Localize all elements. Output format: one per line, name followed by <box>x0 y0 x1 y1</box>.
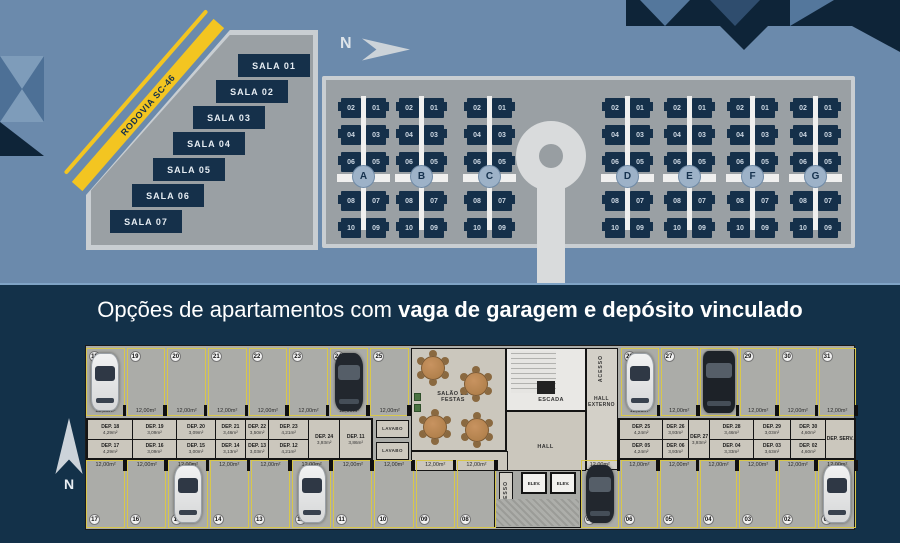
deposit-dep-28[interactable]: DEP. 283,46m² <box>710 420 752 440</box>
unit-cell[interactable]: 07 <box>818 191 838 211</box>
unit-cell[interactable]: 04 <box>467 125 487 145</box>
stall-number: 14 <box>213 514 224 525</box>
lavatory-label: LAVABO <box>382 448 403 453</box>
deposit-dep-02[interactable]: DEP. 024,60m² <box>791 440 825 459</box>
unit-cell[interactable]: 07 <box>755 191 775 211</box>
unit-cell[interactable]: 02 <box>793 98 813 118</box>
parking-stall[interactable]: 0412,00m² <box>700 460 738 528</box>
unit-row: 0201 <box>793 98 838 118</box>
roundabout <box>516 121 586 191</box>
parking-stall[interactable]: 2112,00m² <box>208 348 247 416</box>
unit-cell[interactable]: 03 <box>492 125 512 145</box>
parking-stall[interactable]: 2212,00m² <box>249 348 288 416</box>
building-e: 02010403060508071009E <box>667 88 712 240</box>
deposit-dep-23[interactable]: DEP. 234,21m² <box>269 420 307 440</box>
unit-cell[interactable]: 07 <box>692 191 712 211</box>
deposit-dep-05[interactable]: DEP. 054,24m² <box>620 440 662 459</box>
north-label: N <box>340 35 352 53</box>
unit-cell[interactable]: 10 <box>605 218 625 238</box>
roundabout-center <box>539 144 563 168</box>
parking-stall[interactable]: 2812,00m² <box>700 348 738 416</box>
paved-area <box>495 499 579 526</box>
parking-stall[interactable]: 2512,00m² <box>370 348 409 416</box>
deposit-name: DEP. SERV. <box>827 436 854 442</box>
deposit-area: 4,21m² <box>281 430 296 435</box>
deposit-column: DEP. 193,09m²DEP. 163,09m² <box>133 420 176 458</box>
deposit-dep-15[interactable]: DEP. 153,00m² <box>177 440 215 459</box>
unit-cell[interactable]: 08 <box>605 191 625 211</box>
deposit-dep-12[interactable]: DEP. 124,21m² <box>269 440 307 459</box>
unit-row: 0201 <box>467 98 512 118</box>
deposit-area: 3,46m² <box>724 430 739 435</box>
unit-cell[interactable]: 08 <box>467 191 487 211</box>
stall-area-label: 12,00m² <box>748 408 768 414</box>
deposit-dep-20[interactable]: DEP. 203,09m² <box>177 420 215 440</box>
unit-cell[interactable]: 02 <box>605 98 625 118</box>
parking-row-top-right: 2612,00m²2712,00m²2812,00m²2912,00m²3012… <box>621 348 856 416</box>
plant <box>414 404 421 412</box>
deposit-column: DEP. 254,24m²DEP. 054,24m² <box>620 420 663 458</box>
unit-cell[interactable]: 04 <box>793 125 813 145</box>
unit-cell[interactable]: 08 <box>667 191 687 211</box>
parking-stall[interactable]: 2412,00m² <box>330 348 369 416</box>
unit-cell[interactable]: 09 <box>692 218 712 238</box>
parking-stall[interactable]: 1712,00m² <box>86 460 125 528</box>
round-table <box>465 418 489 442</box>
parking-stall[interactable]: 1812,00m² <box>86 348 125 416</box>
elevator: ELEV. <box>521 472 547 494</box>
stall-area-label: 12,00m² <box>669 462 689 468</box>
parking-stall[interactable]: 2912,00m² <box>740 348 778 416</box>
unit-row: 0403 <box>605 125 650 145</box>
deposit-column: DEP. 184,29m²DEP. 174,29m² <box>88 420 133 458</box>
unit-row: 1009 <box>467 218 512 238</box>
unit-cell[interactable]: 08 <box>793 191 813 211</box>
unit-row: 1009 <box>667 218 712 238</box>
parking-stall[interactable]: 1512,00m² <box>168 460 207 528</box>
stall-number: 05 <box>663 514 674 525</box>
unit-row: 0201 <box>667 98 712 118</box>
parking-row-bottom-right: 0712,00m²0612,00m²0512,00m²0412,00m²0312… <box>581 460 856 528</box>
deposit-column: DEP. 263,93m²DEP. 063,93m² <box>663 420 689 458</box>
stall-area-label: 12,00m² <box>219 462 239 468</box>
deposit-dep-30[interactable]: DEP. 304,60m² <box>791 420 825 440</box>
parking-stall[interactable]: 1212,00m² <box>292 460 331 528</box>
unit-cell[interactable]: 07 <box>630 191 650 211</box>
car-dark <box>335 353 363 411</box>
stall-number: 30 <box>782 351 793 362</box>
unit-row: 0201 <box>399 98 444 118</box>
car-windshield <box>630 366 650 381</box>
deposit-area: 3,33m² <box>724 449 739 454</box>
car-windshield <box>338 365 360 380</box>
parking-stall[interactable]: 2612,00m² <box>621 348 659 416</box>
unit-cell[interactable]: 03 <box>366 125 386 145</box>
lavatory-label: LAVABO <box>382 426 403 431</box>
unit-row: 0807 <box>341 191 386 211</box>
unit-cell[interactable]: 01 <box>692 98 712 118</box>
stall-number: 09 <box>419 514 430 525</box>
unit-row: 0807 <box>793 191 838 211</box>
car-rear-window <box>828 510 846 515</box>
car-rear-window <box>96 398 114 403</box>
unit-cell[interactable]: 09 <box>818 218 838 238</box>
unit-row: 1009 <box>341 218 386 238</box>
lavatory: LAVABO <box>376 442 409 460</box>
unit-cell[interactable]: 10 <box>730 218 750 238</box>
stall-number: 23 <box>292 351 303 362</box>
stall-number: 16 <box>130 514 141 525</box>
deposit-column: DEP. 273,93m² <box>689 420 711 458</box>
round-table <box>464 372 488 396</box>
title-bold: vaga de garagem e depósito vinculado <box>398 297 803 322</box>
external-hall: ACESSO HALL EXTERNO <box>586 348 618 470</box>
building-b: 02010403060508071009B <box>399 88 444 240</box>
stall-number: 27 <box>664 351 675 362</box>
sala-block[interactable]: SALA 03 <box>193 106 265 129</box>
parking-stall[interactable]: 0312,00m² <box>739 460 777 528</box>
parking-stall[interactable]: 1312,00m² <box>251 460 290 528</box>
stall-area-label: 12,00m² <box>708 462 728 468</box>
unit-cell[interactable]: 07 <box>366 191 386 211</box>
deposit-area: 3,46m² <box>223 430 238 435</box>
unit-cell[interactable]: 09 <box>366 218 386 238</box>
title-normal: Opções de apartamentos com <box>97 297 398 322</box>
stall-number: 02 <box>782 514 793 525</box>
unit-cell[interactable]: 01 <box>818 98 838 118</box>
building-badge[interactable]: C <box>478 165 501 188</box>
deposit-dep-11[interactable]: DEP. 113,86m² <box>340 420 371 458</box>
unit-cell[interactable]: 09 <box>424 218 444 238</box>
deposit-dep-18[interactable]: DEP. 184,29m² <box>88 420 132 440</box>
building-c: 02010403060508071009C <box>467 88 512 240</box>
unit-row: 0201 <box>341 98 386 118</box>
unit-cell[interactable]: 02 <box>667 98 687 118</box>
unit-row: 0403 <box>399 125 444 145</box>
unit-cell[interactable]: 01 <box>424 98 444 118</box>
deposit-dep-16[interactable]: DEP. 163,09m² <box>133 440 175 459</box>
parking-stall[interactable]: 2012,00m² <box>167 348 206 416</box>
stall-area-label: 12,00m² <box>827 408 847 414</box>
stall-number: 25 <box>373 351 384 362</box>
parking-row-bottom-left: 1712,00m²1612,00m²1512,00m²1412,00m²1312… <box>86 460 496 528</box>
deposit-column: DEP. 243,93m² <box>309 420 341 458</box>
car-rear-window <box>707 401 731 406</box>
stall-number: 19 <box>130 351 141 362</box>
access-label: ACESSO <box>598 355 604 382</box>
deposit-dep-13[interactable]: DEP. 133,03m² <box>246 440 269 459</box>
car-windshield <box>178 478 198 493</box>
unit-cell[interactable]: 04 <box>399 125 419 145</box>
deposit-area: 4,60m² <box>801 449 816 454</box>
unit-row: 1009 <box>730 218 775 238</box>
deposit-dep-17[interactable]: DEP. 174,29m² <box>88 440 132 459</box>
stall-number: 13 <box>254 514 265 525</box>
deposit-column: DEP. 283,46m²DEP. 043,33m² <box>710 420 753 458</box>
deposit-dep-21[interactable]: DEP. 213,46m² <box>216 420 245 440</box>
unit-cell[interactable]: 02 <box>341 98 361 118</box>
unit-cell[interactable]: 10 <box>341 218 361 238</box>
unit-row: 0403 <box>341 125 386 145</box>
external-hall-label: HALL EXTERNO <box>587 397 616 409</box>
hall: HALL <box>506 411 586 471</box>
deposit-area: 3,93m² <box>668 430 683 435</box>
car-white <box>91 353 119 411</box>
deposit-area: 4,24m² <box>634 430 649 435</box>
party-room: SALÃO DE FESTAS <box>411 348 506 451</box>
deposit-column: DEP. 234,21m²DEP. 124,21m² <box>269 420 308 458</box>
deposit-dep-serv[interactable]: DEP. SERV. <box>826 420 854 458</box>
unit-cell[interactable]: 07 <box>492 191 512 211</box>
deposit-area: 4,24m² <box>634 449 649 454</box>
car-windshield <box>589 477 611 492</box>
unit-cell[interactable]: 03 <box>630 125 650 145</box>
deposit-dep-06[interactable]: DEP. 063,93m² <box>663 440 688 459</box>
deposit-column: DEP. 223,50m²DEP. 133,03m² <box>246 420 270 458</box>
building-a: 02010403060508071009A <box>341 88 386 240</box>
parking-stall[interactable]: 0912,00m² <box>416 460 455 528</box>
deposit-dep-04[interactable]: DEP. 043,33m² <box>710 440 752 459</box>
parking-stall[interactable]: 1912,00m² <box>127 348 166 416</box>
parking-stall[interactable]: 1612,00m² <box>127 460 166 528</box>
deposit-area: 4,29m² <box>103 449 118 454</box>
deposit-column: DEP. 293,03m²DEP. 033,63m² <box>754 420 791 458</box>
stall-number: 22 <box>252 351 263 362</box>
car-white <box>298 465 326 523</box>
unit-cell[interactable]: 02 <box>730 98 750 118</box>
stall-area-label: 12,00m² <box>788 462 808 468</box>
unit-cell[interactable]: 04 <box>730 125 750 145</box>
car-dark <box>586 465 614 523</box>
car-windshield <box>827 478 847 493</box>
stall-area-label: 12,00m² <box>384 462 404 468</box>
deposit-area: 3,13m² <box>223 449 238 454</box>
stall-area-label: 12,00m² <box>748 462 768 468</box>
driveway <box>537 186 565 285</box>
unit-cell[interactable]: 10 <box>399 218 419 238</box>
stall-number: 08 <box>460 514 471 525</box>
stall-area-label: 12,00m² <box>298 408 318 414</box>
building-f: 02010403060508071009F <box>730 88 775 240</box>
elevator-label: ELEV. <box>557 481 570 486</box>
car-rear-window <box>631 398 649 403</box>
deposit-area: 3,03m² <box>250 449 265 454</box>
deposit-area: 3,50m² <box>250 430 265 435</box>
deposit-dep-27[interactable]: DEP. 273,93m² <box>689 420 710 458</box>
unit-cell[interactable]: 03 <box>424 125 444 145</box>
garage-floor-plan: SALÃO DE FESTAS ESCADA ACESSO HALL EXTER… <box>85 345 855 530</box>
unit-row: 0201 <box>605 98 650 118</box>
building-g: 02010403060508071009G <box>793 88 838 240</box>
unit-cell[interactable]: 02 <box>399 98 419 118</box>
north-label: N <box>52 476 86 492</box>
stall-area-label: 12,00m² <box>217 408 237 414</box>
deposit-area: 3,00m² <box>189 449 204 454</box>
stall-area-label: 12,00m² <box>466 462 486 468</box>
deposit-dep-25[interactable]: DEP. 254,24m² <box>620 420 662 440</box>
stairs-label: ESCADA <box>531 397 571 403</box>
unit-cell[interactable]: 07 <box>424 191 444 211</box>
unit-row: 0807 <box>605 191 650 211</box>
deposit-column: DEP. 304,60m²DEP. 024,60m² <box>791 420 826 458</box>
parking-stall[interactable]: 3112,00m² <box>819 348 857 416</box>
building-badge[interactable]: A <box>352 165 375 188</box>
round-table <box>423 415 447 439</box>
car-rear-window <box>339 399 359 404</box>
parking-stall[interactable]: 0612,00m² <box>621 460 659 528</box>
unit-row: 0403 <box>793 125 838 145</box>
stall-number: 06 <box>624 514 635 525</box>
page: RODOVIA SC-46 N SALA 01SALA 02SALA 03SAL… <box>0 0 900 543</box>
car-windshield <box>302 478 322 493</box>
building-d: 02010403060508071009D <box>605 88 650 240</box>
deposit-area: 3,86m² <box>348 440 363 445</box>
unit-row: 0201 <box>730 98 775 118</box>
deposit-area: 4,60m² <box>801 430 816 435</box>
car-rear-window <box>590 511 610 516</box>
lavatory: LAVABO <box>376 420 409 438</box>
deposit-dep-14[interactable]: DEP. 143,13m² <box>216 440 245 459</box>
deposit-dep-26[interactable]: DEP. 263,93m² <box>663 420 688 440</box>
building-badge[interactable]: B <box>410 165 433 188</box>
parking-stall[interactable]: 1012,00m² <box>374 460 413 528</box>
stall-number: 20 <box>170 351 181 362</box>
car-dark <box>703 351 735 413</box>
deposit-area: 4,21m² <box>281 449 296 454</box>
north-arrow-icon <box>362 37 410 62</box>
car-windshield <box>706 363 732 378</box>
deposit-band-right: DEP. 254,24m²DEP. 054,24m²DEP. 263,93m²D… <box>618 418 856 460</box>
deposit-band-left: DEP. 184,29m²DEP. 174,29m²DEP. 193,09m²D… <box>86 418 373 460</box>
sala-block[interactable]: SALA 04 <box>173 132 245 155</box>
deposit-dep-03[interactable]: DEP. 033,63m² <box>754 440 790 459</box>
deposit-dep-29[interactable]: DEP. 293,03m² <box>754 420 790 440</box>
stair-landing <box>537 381 555 394</box>
stall-area-label: 12,00m² <box>669 408 689 414</box>
unit-row: 0807 <box>467 191 512 211</box>
unit-row: 0807 <box>667 191 712 211</box>
parking-stall[interactable]: 1412,00m² <box>210 460 249 528</box>
stall-area-label: 12,00m² <box>176 408 196 414</box>
stall-area-label: 12,00m² <box>260 462 280 468</box>
unit-cell[interactable]: 09 <box>755 218 775 238</box>
unit-cell[interactable]: 04 <box>605 125 625 145</box>
building-badge[interactable]: F <box>741 165 764 188</box>
stall-number: 03 <box>742 514 753 525</box>
parking-stall[interactable]: 0512,00m² <box>660 460 698 528</box>
parking-stall[interactable]: 0712,00m² <box>581 460 619 528</box>
stall-area-label: 12,00m² <box>258 408 278 414</box>
unit-cell[interactable]: 01 <box>492 98 512 118</box>
parking-stall[interactable]: 2712,00m² <box>661 348 699 416</box>
stall-number: 17 <box>89 514 100 525</box>
plant <box>414 393 421 401</box>
unit-cell[interactable]: 10 <box>667 218 687 238</box>
unit-cell[interactable]: 03 <box>818 125 838 145</box>
deposit-area: 4,29m² <box>103 430 118 435</box>
stall-area-label: 12,00m² <box>629 462 649 468</box>
stall-area-label: 12,00m² <box>136 408 156 414</box>
unit-cell[interactable]: 10 <box>793 218 813 238</box>
sala-block[interactable]: SALA 01 <box>238 54 310 77</box>
unit-cell[interactable]: 03 <box>755 125 775 145</box>
unit-row: 0403 <box>467 125 512 145</box>
stall-number: 21 <box>211 351 222 362</box>
parking-stall[interactable]: 3012,00m² <box>779 348 817 416</box>
deposit-column: DEP. 113,86m² <box>340 420 371 458</box>
round-table <box>421 356 445 380</box>
deposit-area: 3,63m² <box>765 449 780 454</box>
stall-area-label: 12,00m² <box>425 462 445 468</box>
deposit-dep-24[interactable]: DEP. 243,93m² <box>309 420 340 458</box>
car-rear-window <box>179 510 197 515</box>
stall-number: 29 <box>743 351 754 362</box>
unit-cell[interactable]: 04 <box>667 125 687 145</box>
sala-block[interactable]: SALA 02 <box>216 80 288 103</box>
elevator-core: ACESSO ELEV. ELEV. <box>494 470 581 528</box>
unit-row: 0807 <box>730 191 775 211</box>
unit-cell[interactable]: 03 <box>692 125 712 145</box>
unit-cell[interactable]: 04 <box>341 125 361 145</box>
unit-cell[interactable]: 01 <box>630 98 650 118</box>
unit-cell[interactable]: 08 <box>341 191 361 211</box>
unit-cell[interactable]: 08 <box>730 191 750 211</box>
stall-area-label: 12,00m² <box>96 462 116 468</box>
elevator: ELEV. <box>550 472 576 494</box>
stall-number: 10 <box>377 514 388 525</box>
parking-stall[interactable]: 0812,00m² <box>457 460 496 528</box>
deposit-area: 3,93m² <box>317 440 332 445</box>
parking-stall[interactable]: 2312,00m² <box>289 348 328 416</box>
unit-cell[interactable]: 10 <box>467 218 487 238</box>
parking-stall[interactable]: 0112,00m² <box>818 460 856 528</box>
unit-cell[interactable]: 09 <box>492 218 512 238</box>
deposit-dep-22[interactable]: DEP. 223,50m² <box>246 420 269 440</box>
unit-row: 0403 <box>730 125 775 145</box>
deposit-area: 3,09m² <box>189 430 204 435</box>
elevator-label: ELEV. <box>528 481 541 486</box>
building-badge[interactable]: G <box>804 165 827 188</box>
sala-block[interactable]: SALA 05 <box>153 158 225 181</box>
stall-area-label: 12,00m² <box>788 408 808 414</box>
unit-cell[interactable]: 01 <box>755 98 775 118</box>
building-badge[interactable]: E <box>678 165 701 188</box>
unit-row: 0403 <box>667 125 712 145</box>
stairwell: ESCADA <box>506 348 586 411</box>
car-white <box>626 353 654 411</box>
unit-cell[interactable]: 09 <box>630 218 650 238</box>
deposit-column: DEP. 213,46m²DEP. 143,13m² <box>216 420 246 458</box>
unit-cell[interactable]: 01 <box>366 98 386 118</box>
sala-block[interactable]: SALA 07 <box>110 210 182 233</box>
building-badge[interactable]: D <box>616 165 639 188</box>
sala-block[interactable]: SALA 06 <box>132 184 204 207</box>
car-white <box>823 465 851 523</box>
deposit-column: DEP. SERV. <box>826 420 854 458</box>
stall-number: 04 <box>703 514 714 525</box>
car-white <box>174 465 202 523</box>
unit-cell[interactable]: 08 <box>399 191 419 211</box>
hall-label: HALL <box>507 444 584 450</box>
unit-cell[interactable]: 02 <box>467 98 487 118</box>
parking-stall[interactable]: 0212,00m² <box>779 460 817 528</box>
stall-area-label: 12,00m² <box>380 408 400 414</box>
parking-stall[interactable]: 1112,00m² <box>333 460 372 528</box>
stall-number: 11 <box>336 514 347 525</box>
deposit-dep-19[interactable]: DEP. 193,09m² <box>133 420 175 440</box>
deposit-area: 3,93m² <box>692 440 707 445</box>
deposit-area: 3,09m² <box>147 430 162 435</box>
